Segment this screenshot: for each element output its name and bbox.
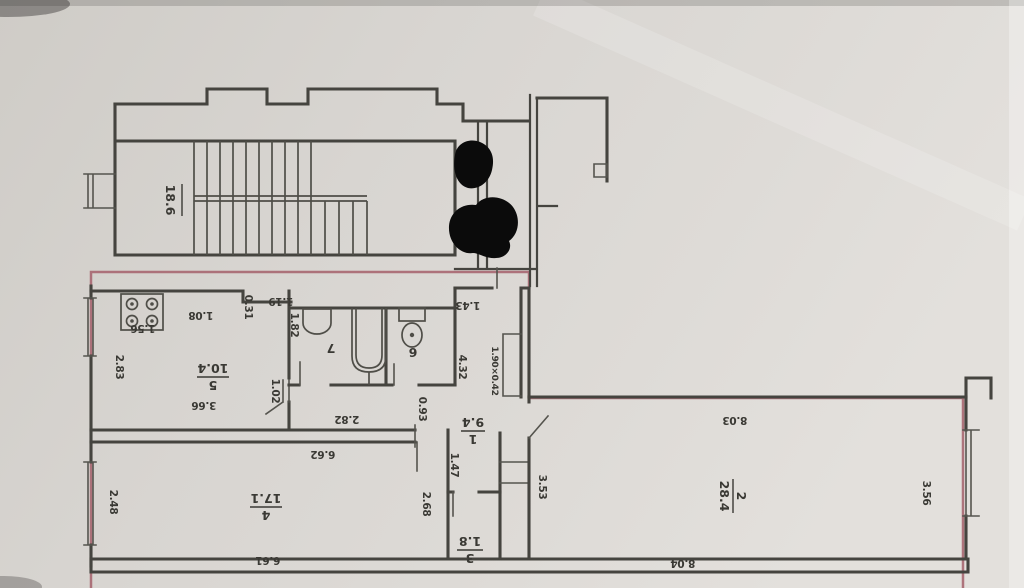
closet-area: 1.8: [459, 534, 481, 549]
paper-top-shadow: [0, 0, 1024, 6]
dim-bath-wall: 1.82: [288, 313, 300, 338]
dim-kitchen-jog: 0.31: [242, 295, 254, 320]
dim-kitchen-stove: 1.56: [131, 322, 156, 334]
bath-number: 7: [327, 341, 336, 356]
wc-number: 6: [408, 345, 417, 360]
dim-kitchen-top2: 1.19: [269, 295, 294, 307]
dim-niche: 1.90×0.42: [489, 346, 499, 395]
floor-plan-drawing: 1.56 1.08 1.19 3.66 2.82 1.43 6.62 6.61 …: [0, 0, 1024, 588]
dim-corridor-strip: 2.82: [335, 413, 360, 425]
dim-kitchen-stub: 1.02: [269, 379, 281, 404]
dim-room2-left: 3.53: [536, 475, 548, 500]
hall-number: 1: [469, 432, 478, 447]
dim-wc-width: 0.93: [416, 397, 428, 422]
dim-room2-bottom: 8.04: [671, 557, 696, 569]
paper-right-edge: [1009, 0, 1024, 588]
living-area: 28.4: [717, 481, 732, 512]
dim-room4-top: 6.62: [311, 448, 336, 460]
dim-kitchen-width: 3.66: [192, 399, 217, 411]
dim-room2-right: 3.56: [920, 481, 932, 506]
floor-plan-photo: 1.56 1.08 1.19 3.66 2.82 1.43 6.62 6.61 …: [0, 0, 1024, 588]
dim-room4-bottom: 6.61: [256, 554, 281, 566]
stairwell-area: 18.6: [163, 185, 178, 216]
dim-kitchen-left: 2.83: [113, 355, 125, 380]
bedroom-number: 4: [261, 508, 270, 523]
closet-number: 3: [466, 551, 475, 566]
dim-room4-right: 2.68: [420, 492, 432, 517]
dim-room4-left: 2.48: [107, 490, 119, 515]
dim-room2-top: 8.03: [723, 414, 748, 426]
living-number: 2: [734, 492, 749, 501]
bedroom-area: 17.1: [251, 491, 282, 506]
dim-hall-height: 4.32: [456, 355, 468, 380]
dim-kitchen-top: 1.08: [189, 309, 214, 321]
kitchen-number: 5: [209, 378, 218, 393]
hall-area: 9.4: [462, 415, 484, 430]
kitchen-area: 10.4: [197, 361, 228, 376]
dim-hall-lower: 1.47: [448, 453, 460, 478]
dim-hall-top: 1.43: [456, 299, 481, 311]
